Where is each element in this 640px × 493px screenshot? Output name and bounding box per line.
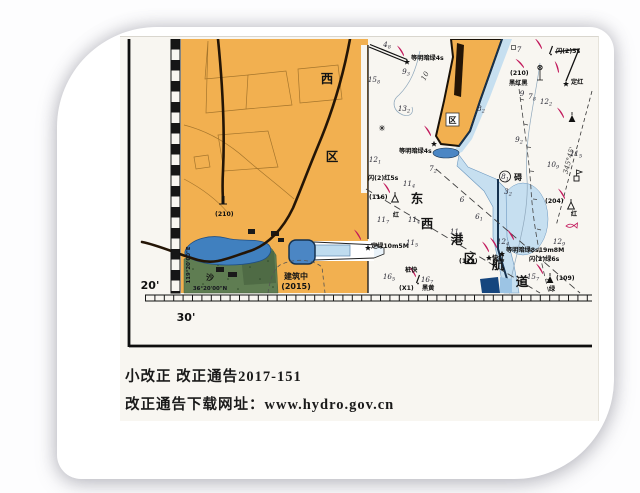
sounding: 121 [369,155,381,166]
buoy-fl2-icon [550,46,553,55]
light-flare-icon [397,46,404,57]
page: 36144 [0,0,640,493]
sounding: 114 [408,215,420,226]
sand-label: 沙 [206,273,214,282]
depth-contour-10m-label: 10 [420,70,432,82]
area-label-xi-west: 西 [321,71,334,86]
beacon-204-red-label: 红 [571,210,578,218]
correction-notes: 小改正 改正通告2017-151 改正通告下载网址：www.hydro.gov.… [125,365,394,421]
buoy-x1-icon [417,275,420,284]
sounding: 157 [527,272,540,283]
sounding: 9 [520,89,525,98]
sounding: 7 [517,45,522,54]
dock-strip [314,245,350,256]
beacon-109-label: (109) [556,275,575,282]
sounding: 167 [421,275,434,286]
light-flare-icon [424,126,431,137]
rock-icon [379,125,385,131]
buoy-pile-quick-label: 桩快 [405,266,418,274]
sounding: 165 [383,272,395,283]
beacon-triangle-icon [569,112,576,122]
longitude-tick-label: 30' [177,311,196,324]
light-flare-icon [515,58,524,70]
latitude-tick-label: 20' [141,279,160,292]
light-label-isophase-green-8s19m8M: 等明暗绿8s19m8M [505,246,564,254]
under-construction-label: 建筑中 [283,271,308,281]
obstruction-square-icon [512,46,516,50]
sounding: 72 [429,164,437,175]
fishery-icon [566,223,578,228]
chart-photo: 西区东西港区航道碍沙区建筑中(2015)等明暗绿4s等明暗绿4s闪(2)5s定红… [120,36,599,421]
beacon-116-icon [392,192,399,202]
deep-pocket [480,277,500,293]
sounding: 129 [553,237,566,248]
area-label-qu-district: 区 [326,149,339,164]
sounding: 92 [515,135,523,146]
sounding: 61 [475,212,483,223]
light-label-fl2-5s: 闪(2)5s [556,47,580,55]
latitude-line-label: 36°20'00"N [193,286,228,292]
light-flare-icon [482,242,489,253]
light-label-fl2-green-6s: 闪(2)绿6s [529,255,560,263]
buoy-black-yellow-label: 黑黄 [422,284,435,292]
sounding: 48 [382,40,391,51]
square-beacon-icon [574,176,579,181]
sounding: 109 [547,160,560,171]
main-pier [436,39,502,146]
sounding: 122 [540,97,552,108]
sounding: 93 [402,67,410,78]
beacon-color-black-red-black-label: 黑红黑 [509,79,528,87]
pier-tip-basin [433,148,459,158]
dock-head [289,240,315,264]
longitude-line-label: 119°20'00"E [186,246,192,283]
light-label-fixed-red: 定红 [571,78,584,86]
beacon-flag-icon [577,170,583,176]
beacon-116-red-label: 红 [393,211,400,219]
longitude-scale-bar [145,295,592,301]
light-label-fixed-green-10m5M: 定绿10m5M [371,242,409,250]
beacon-204-icon [568,199,575,209]
shallow-pocket [500,277,512,293]
photo-card: 36144 [57,27,614,479]
light-label-fl2-red-5s: 闪(2)红5s [368,174,399,182]
sounding: 6 [460,195,465,204]
channel-limit-lines [366,169,580,293]
light-star-icon [404,59,410,65]
beacon-116-label: (116) [369,194,388,201]
beacon-elevation-210-label: (210) [510,70,529,77]
nautical-chart: 西区东西港区航道碍沙区建筑中(2015)等明暗绿4s等明暗绿4s闪(2)5s定红… [124,39,596,353]
light-star-icon [431,141,437,147]
light-flare-icon [535,39,542,49]
light-star-icon [563,81,569,87]
sounding: 158 [368,75,380,86]
beacon-109-icon [547,273,554,283]
latitude-scale-bar [171,39,180,293]
light-flare-icon [552,61,562,73]
beacon-204-label: (204) [545,198,564,205]
channel-label-dong: 东 [411,191,424,206]
construction-year-label: (2015) [281,282,311,291]
correction-note-line2: 改正通告下载网址：www.hydro.gov.cn [125,393,394,414]
coast-road [361,45,367,193]
light-label-quick-red: 快红 [492,254,505,262]
bearing-line [556,91,592,226]
beacon-109-green-label: 绿 [549,285,556,293]
buoy-x1-label: (X1) [399,285,414,292]
obstruction-label: 碍 [514,172,522,182]
light-flare-icon [383,183,390,194]
light-label-isophase-green-4s-pier: 等明暗绿4s [398,147,432,155]
sounding: 114 [403,179,415,190]
tower-elevation-210-label: (210) [215,211,234,218]
pier-district-label: 区 [449,116,457,125]
beacon-112-label: (112) [459,258,478,265]
light-label-isophase-green-4s-breakwater: 等明暗绿4s [410,54,444,62]
light-flare-icon [557,108,564,119]
channel-label-xi: 西 [421,216,434,231]
sounding: 117 [377,215,390,226]
correction-note-line1: 小改正 改正通告2017-151 [125,365,394,386]
